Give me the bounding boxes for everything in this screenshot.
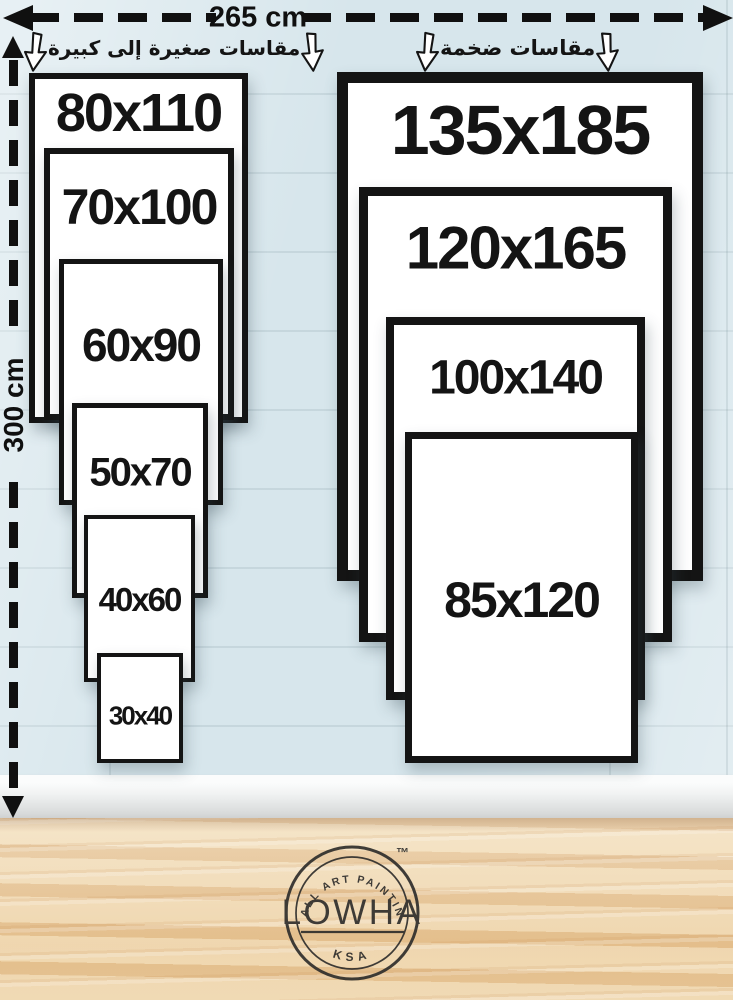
logo-arc-bottom-text: KSA: [331, 947, 372, 964]
arrowhead-down-icon: [2, 796, 24, 818]
size-label: 100x140: [429, 351, 602, 406]
width-ruler-label: 265 cm: [209, 2, 307, 35]
logo-trademark: ™: [396, 845, 409, 860]
size-frame-30x40: 30x40: [97, 653, 183, 763]
dashed-line: [302, 13, 704, 22]
heading-huge-sizes: مقاسات ضخمة: [415, 31, 620, 73]
wall-seam: [726, 0, 728, 775]
heading-left-text: مقاسات صغيرة إلى كبيرة: [48, 37, 300, 59]
lowha-logo: WALL ART PAINTING LOWHA KSA ™: [267, 828, 437, 998]
arrowhead-left-icon: [3, 5, 33, 31]
dashed-line: [9, 60, 18, 328]
size-label: 80x110: [56, 82, 221, 144]
size-label: 85x120: [444, 571, 599, 629]
logo-wordmark: LOWHA: [282, 893, 423, 932]
height-ruler-label: 300 cm: [0, 358, 30, 453]
size-label: 120x165: [406, 214, 626, 283]
heading-small-to-large: مقاسات صغيرة إلى كبيرة: [23, 31, 254, 73]
dashed-line: [30, 13, 216, 22]
size-label: 30x40: [109, 701, 171, 732]
down-arrow-icon: [595, 31, 620, 73]
baseboard: [0, 775, 733, 818]
size-guide-poster: 265 cm 300 cm مقاسات صغيرة إلى كبيرة مقا…: [0, 0, 733, 1000]
down-arrow-icon: [23, 31, 48, 73]
svg-text:KSA: KSA: [331, 947, 372, 964]
down-arrow-icon: [300, 31, 325, 73]
size-label: 70x100: [62, 178, 217, 236]
size-label: 60x90: [82, 318, 200, 372]
size-label: 50x70: [89, 451, 190, 496]
arrowhead-right-icon: [703, 5, 733, 31]
size-label: 40x60: [99, 581, 181, 619]
size-frame-85x120: 85x120: [405, 432, 638, 763]
size-label: 135x185: [391, 90, 650, 170]
arrowhead-up-icon: [2, 36, 24, 58]
down-arrow-icon: [415, 31, 440, 73]
heading-right-text: مقاسات ضخمة: [440, 37, 595, 60]
dashed-line: [9, 482, 18, 794]
